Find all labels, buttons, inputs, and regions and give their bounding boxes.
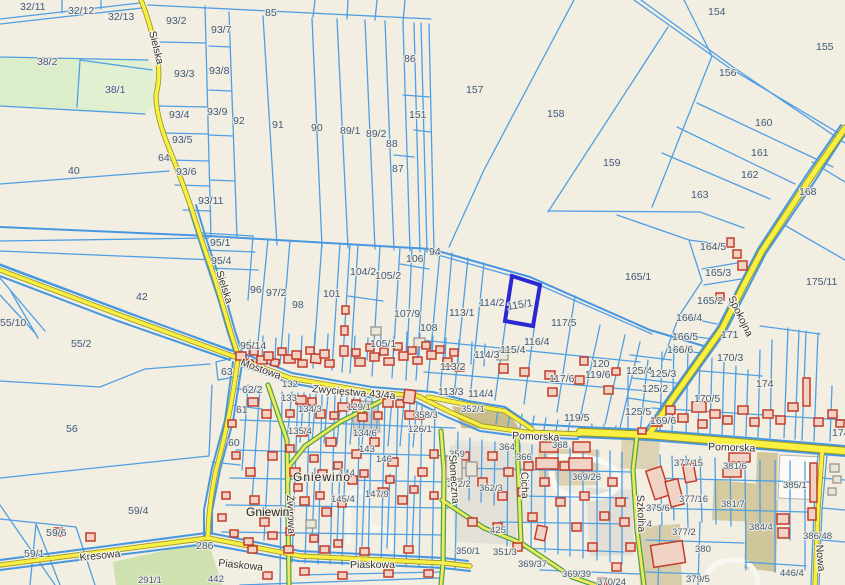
svg-text:377/2: 377/2	[672, 527, 696, 538]
svg-text:89/1: 89/1	[340, 125, 361, 137]
svg-text:125/4: 125/4	[626, 365, 652, 377]
svg-text:55/2: 55/2	[71, 338, 92, 350]
svg-text:Pomorska: Pomorska	[512, 430, 560, 444]
svg-text:38/2: 38/2	[37, 56, 58, 68]
svg-text:61: 61	[236, 404, 248, 416]
svg-text:59/1: 59/1	[24, 548, 45, 560]
svg-text:125/2: 125/2	[642, 383, 668, 395]
svg-text:108: 108	[420, 322, 438, 334]
svg-text:135/4: 135/4	[288, 426, 312, 437]
svg-text:119/5: 119/5	[564, 412, 590, 424]
svg-text:155: 155	[816, 41, 834, 53]
svg-text:Gniewino: Gniewino	[293, 470, 351, 484]
svg-text:364: 364	[499, 442, 515, 453]
svg-text:86: 86	[404, 53, 416, 65]
svg-text:32/13: 32/13	[108, 11, 134, 23]
svg-text:156: 156	[719, 67, 737, 79]
svg-text:62/2: 62/2	[242, 384, 263, 396]
svg-text:55/10: 55/10	[0, 317, 26, 329]
svg-text:381/6: 381/6	[723, 461, 747, 472]
svg-text:93/4: 93/4	[169, 109, 190, 121]
svg-text:366: 366	[516, 452, 532, 463]
svg-text:164/5: 164/5	[700, 241, 726, 253]
svg-text:166/4: 166/4	[676, 312, 702, 324]
svg-text:60: 60	[228, 437, 240, 449]
svg-text:377/16: 377/16	[679, 494, 708, 505]
svg-text:145/4: 145/4	[331, 494, 355, 505]
svg-text:104/2: 104/2	[350, 266, 376, 278]
svg-text:165/3: 165/3	[705, 267, 731, 279]
svg-text:442: 442	[208, 574, 224, 585]
svg-text:Nowa: Nowa	[813, 544, 827, 572]
svg-text:351/3: 351/3	[493, 547, 517, 558]
svg-text:168: 168	[799, 186, 817, 198]
svg-text:42: 42	[136, 291, 148, 303]
svg-text:117/6: 117/6	[549, 373, 575, 385]
svg-text:63: 63	[221, 366, 233, 378]
svg-text:147/9: 147/9	[365, 489, 389, 500]
svg-text:377/15: 377/15	[674, 458, 703, 469]
svg-text:94: 94	[429, 246, 441, 258]
svg-text:158: 158	[547, 108, 565, 120]
svg-text:98: 98	[292, 299, 304, 311]
svg-text:157: 157	[466, 84, 484, 96]
svg-text:174: 174	[832, 427, 845, 439]
svg-text:96: 96	[250, 284, 262, 296]
svg-text:91: 91	[272, 119, 284, 131]
svg-text:166/6: 166/6	[667, 344, 693, 356]
svg-text:286: 286	[196, 540, 214, 552]
svg-text:134/3: 134/3	[298, 404, 322, 415]
svg-text:125/3: 125/3	[650, 368, 676, 380]
svg-text:369/26: 369/26	[572, 472, 601, 483]
svg-text:134/6: 134/6	[353, 428, 377, 439]
svg-text:370/24: 370/24	[597, 577, 626, 585]
svg-text:385/1: 385/1	[783, 480, 807, 491]
svg-text:119/6: 119/6	[585, 369, 611, 381]
svg-text:38/1: 38/1	[105, 84, 126, 96]
svg-text:375/6: 375/6	[646, 503, 670, 514]
svg-text:162: 162	[741, 169, 759, 181]
svg-text:Gniewin: Gniewin	[246, 505, 289, 519]
svg-text:369/37: 369/37	[518, 559, 547, 570]
svg-text:170/5: 170/5	[694, 393, 720, 405]
svg-text:106: 106	[406, 253, 424, 265]
svg-text:163: 163	[691, 189, 709, 201]
svg-text:32/12: 32/12	[68, 5, 94, 17]
svg-text:105/1: 105/1	[370, 338, 396, 350]
svg-text:95/1: 95/1	[210, 237, 231, 249]
svg-text:358/3: 358/3	[414, 410, 438, 421]
svg-text:Pomorska: Pomorska	[708, 441, 756, 455]
svg-text:159: 159	[603, 157, 621, 169]
svg-text:386/48: 386/48	[803, 531, 832, 542]
svg-text:93/7: 93/7	[211, 24, 232, 36]
svg-text:93/5: 93/5	[172, 134, 193, 146]
svg-text:113/2: 113/2	[440, 361, 466, 373]
svg-text:89/2: 89/2	[366, 128, 387, 140]
svg-text:115/4: 115/4	[500, 344, 526, 356]
svg-text:Cicha: Cicha	[518, 472, 531, 499]
svg-text:165/1: 165/1	[625, 271, 651, 283]
svg-text:125/5: 125/5	[625, 406, 651, 418]
svg-text:291/1: 291/1	[138, 575, 162, 585]
svg-text:126/1: 126/1	[408, 424, 432, 435]
svg-text:Piaskowa: Piaskowa	[350, 559, 395, 571]
svg-text:93/6: 93/6	[176, 166, 197, 178]
svg-text:161: 161	[751, 147, 769, 159]
svg-text:133: 133	[281, 393, 297, 404]
svg-text:352/1: 352/1	[461, 404, 485, 415]
svg-text:113/3: 113/3	[438, 386, 464, 398]
svg-text:381/7: 381/7	[721, 499, 745, 510]
svg-text:56: 56	[66, 423, 78, 435]
svg-text:97/2: 97/2	[266, 287, 287, 299]
svg-text:93/11: 93/11	[198, 195, 224, 207]
svg-text:Szkolna: Szkolna	[634, 495, 647, 533]
svg-text:151: 151	[409, 109, 427, 121]
svg-text:446/4: 446/4	[780, 568, 804, 579]
svg-text:379/5: 379/5	[686, 574, 710, 585]
svg-text:93/9: 93/9	[207, 106, 228, 118]
svg-text:93/8: 93/8	[209, 65, 230, 77]
svg-text:114/2: 114/2	[479, 297, 505, 309]
svg-text:169/6: 169/6	[650, 415, 676, 427]
svg-text:350/1: 350/1	[456, 546, 480, 557]
svg-text:174: 174	[756, 378, 774, 390]
svg-text:107/9: 107/9	[394, 308, 420, 320]
svg-text:369/39: 369/39	[562, 569, 591, 580]
svg-text:143: 143	[359, 444, 375, 455]
svg-text:90: 90	[311, 122, 323, 134]
svg-text:101: 101	[323, 288, 341, 300]
svg-text:120: 120	[592, 358, 610, 370]
svg-text:88: 88	[386, 138, 398, 150]
svg-text:425: 425	[490, 525, 506, 536]
svg-text:116/4: 116/4	[524, 336, 550, 348]
svg-text:154: 154	[708, 6, 726, 18]
svg-text:87: 87	[392, 163, 404, 175]
svg-text:93/3: 93/3	[174, 68, 195, 80]
svg-text:362/3: 362/3	[479, 483, 503, 494]
svg-text:95/14: 95/14	[240, 340, 266, 352]
svg-text:105/2: 105/2	[375, 270, 401, 282]
svg-text:114/3: 114/3	[474, 349, 500, 361]
svg-text:165/2: 165/2	[697, 295, 723, 307]
svg-text:384/4: 384/4	[749, 522, 773, 533]
svg-text:170/3: 170/3	[717, 352, 743, 364]
svg-text:59/4: 59/4	[128, 505, 149, 517]
svg-text:166/5: 166/5	[672, 331, 698, 343]
svg-text:93/2: 93/2	[166, 15, 187, 27]
svg-text:380: 380	[695, 544, 711, 555]
svg-text:146: 146	[376, 454, 392, 465]
svg-text:114/4: 114/4	[468, 388, 494, 400]
svg-text:175/11: 175/11	[806, 276, 837, 288]
svg-text:40: 40	[68, 165, 80, 177]
svg-text:132: 132	[282, 379, 298, 390]
svg-text:85: 85	[265, 7, 277, 19]
svg-text:117/5: 117/5	[551, 317, 577, 329]
svg-text:32/11: 32/11	[20, 1, 46, 13]
svg-text:64: 64	[158, 152, 170, 164]
svg-text:129/1: 129/1	[347, 402, 371, 413]
svg-text:92: 92	[233, 115, 245, 127]
svg-text:59/6: 59/6	[46, 527, 67, 539]
svg-text:113/1: 113/1	[449, 307, 475, 319]
svg-text:160: 160	[755, 117, 773, 129]
svg-text:95/4: 95/4	[211, 255, 232, 267]
svg-text:171: 171	[721, 329, 739, 341]
